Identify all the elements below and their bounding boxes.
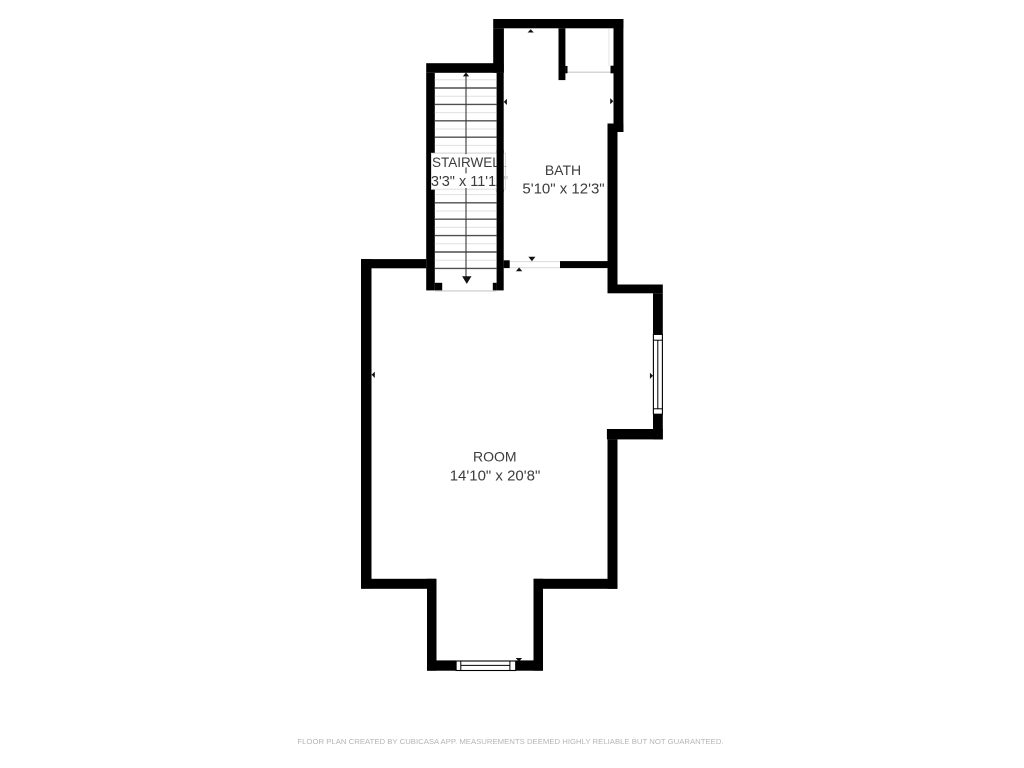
svg-text:14'10" x 20'8": 14'10" x 20'8" xyxy=(450,468,541,485)
svg-text:STAIRWELL: STAIRWELL xyxy=(432,155,508,170)
svg-text:BATH: BATH xyxy=(545,162,581,178)
svg-text:5'10" x 12'3": 5'10" x 12'3" xyxy=(522,181,604,198)
svg-text:FLOOR PLAN CREATED BY CUBICASA: FLOOR PLAN CREATED BY CUBICASA APP. MEAS… xyxy=(297,737,723,746)
svg-text:ROOM: ROOM xyxy=(473,449,517,465)
